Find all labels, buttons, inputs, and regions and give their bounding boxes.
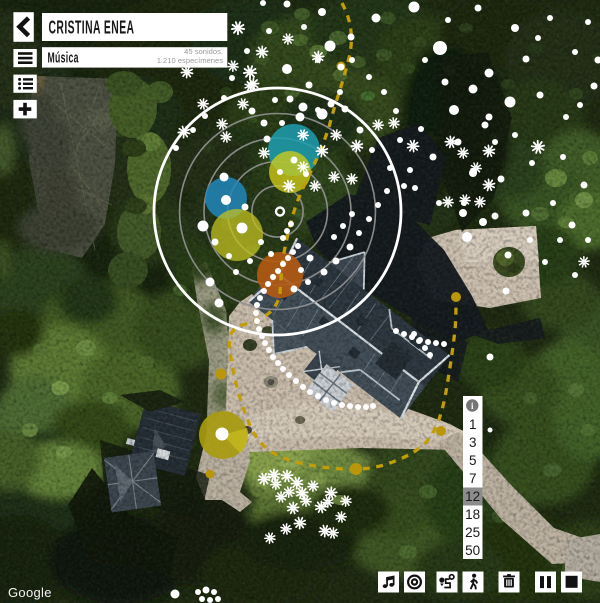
svg-text:Google: Google <box>8 585 52 600</box>
svg-text:18: 18 <box>465 507 480 522</box>
svg-text:Música: Música <box>48 49 79 66</box>
svg-text:50: 50 <box>465 543 480 558</box>
svg-text:7: 7 <box>469 471 477 486</box>
svg-text:3: 3 <box>469 435 477 450</box>
svg-text:45 sonidos.: 45 sonidos. <box>184 47 223 56</box>
svg-text:CRISTINA ENEA: CRISTINA ENEA <box>49 17 135 38</box>
svg-text:12: 12 <box>465 489 480 504</box>
svg-text:5: 5 <box>469 453 477 468</box>
svg-text:25: 25 <box>465 525 480 540</box>
svg-text:1.210 especímenes: 1.210 especímenes <box>157 56 223 65</box>
svg-text:1: 1 <box>469 417 477 432</box>
